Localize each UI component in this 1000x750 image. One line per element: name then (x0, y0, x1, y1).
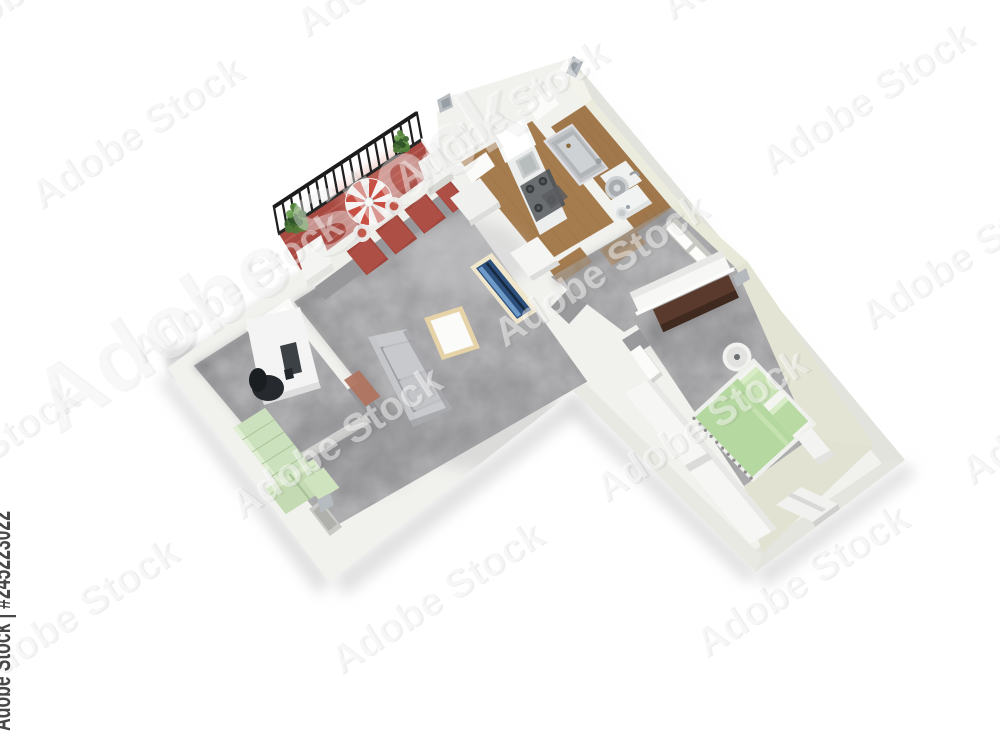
svg-text:Adobe Stock | #245223022: Adobe Stock | #245223022 (0, 511, 16, 731)
